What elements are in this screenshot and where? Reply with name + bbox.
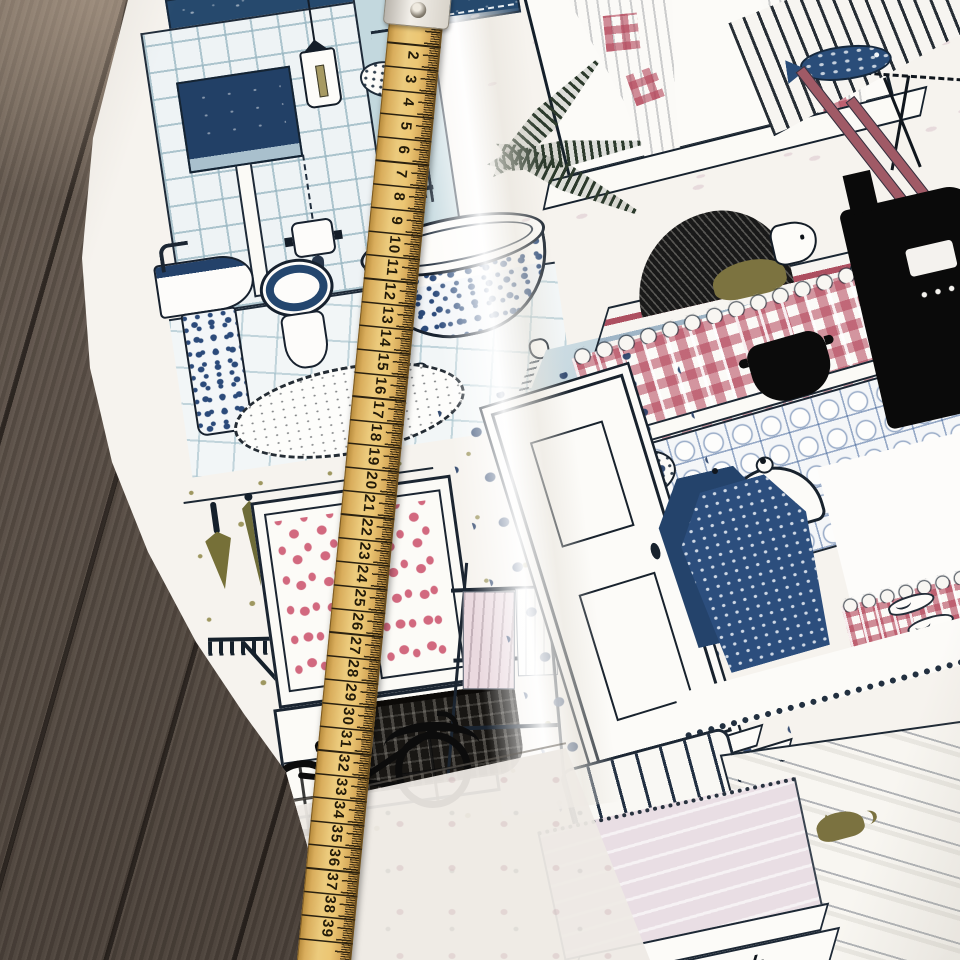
toilet-seat — [256, 254, 338, 322]
door-knob — [649, 542, 663, 561]
candle — [315, 65, 329, 98]
tape-number: 39 — [314, 902, 339, 955]
toilet — [256, 254, 348, 376]
hedgehog-face — [767, 217, 821, 268]
sink-bowl — [153, 252, 258, 320]
garden-trowel-icon — [200, 500, 238, 591]
wall-hook — [712, 468, 718, 474]
wall-hook — [760, 458, 766, 464]
door-panel — [530, 420, 635, 547]
toilet-cistern — [176, 66, 303, 174]
tape-rivet-icon — [409, 1, 426, 18]
drawer-handle — [752, 953, 766, 960]
toilet-base — [280, 309, 332, 371]
gingham-patch — [603, 13, 641, 52]
bicycle-handlebar — [436, 711, 459, 734]
toilet-paper-roll — [290, 217, 337, 259]
photo-of-fabric-with-tape-measure: 2345678910111213141516171819202122232425… — [0, 0, 960, 960]
